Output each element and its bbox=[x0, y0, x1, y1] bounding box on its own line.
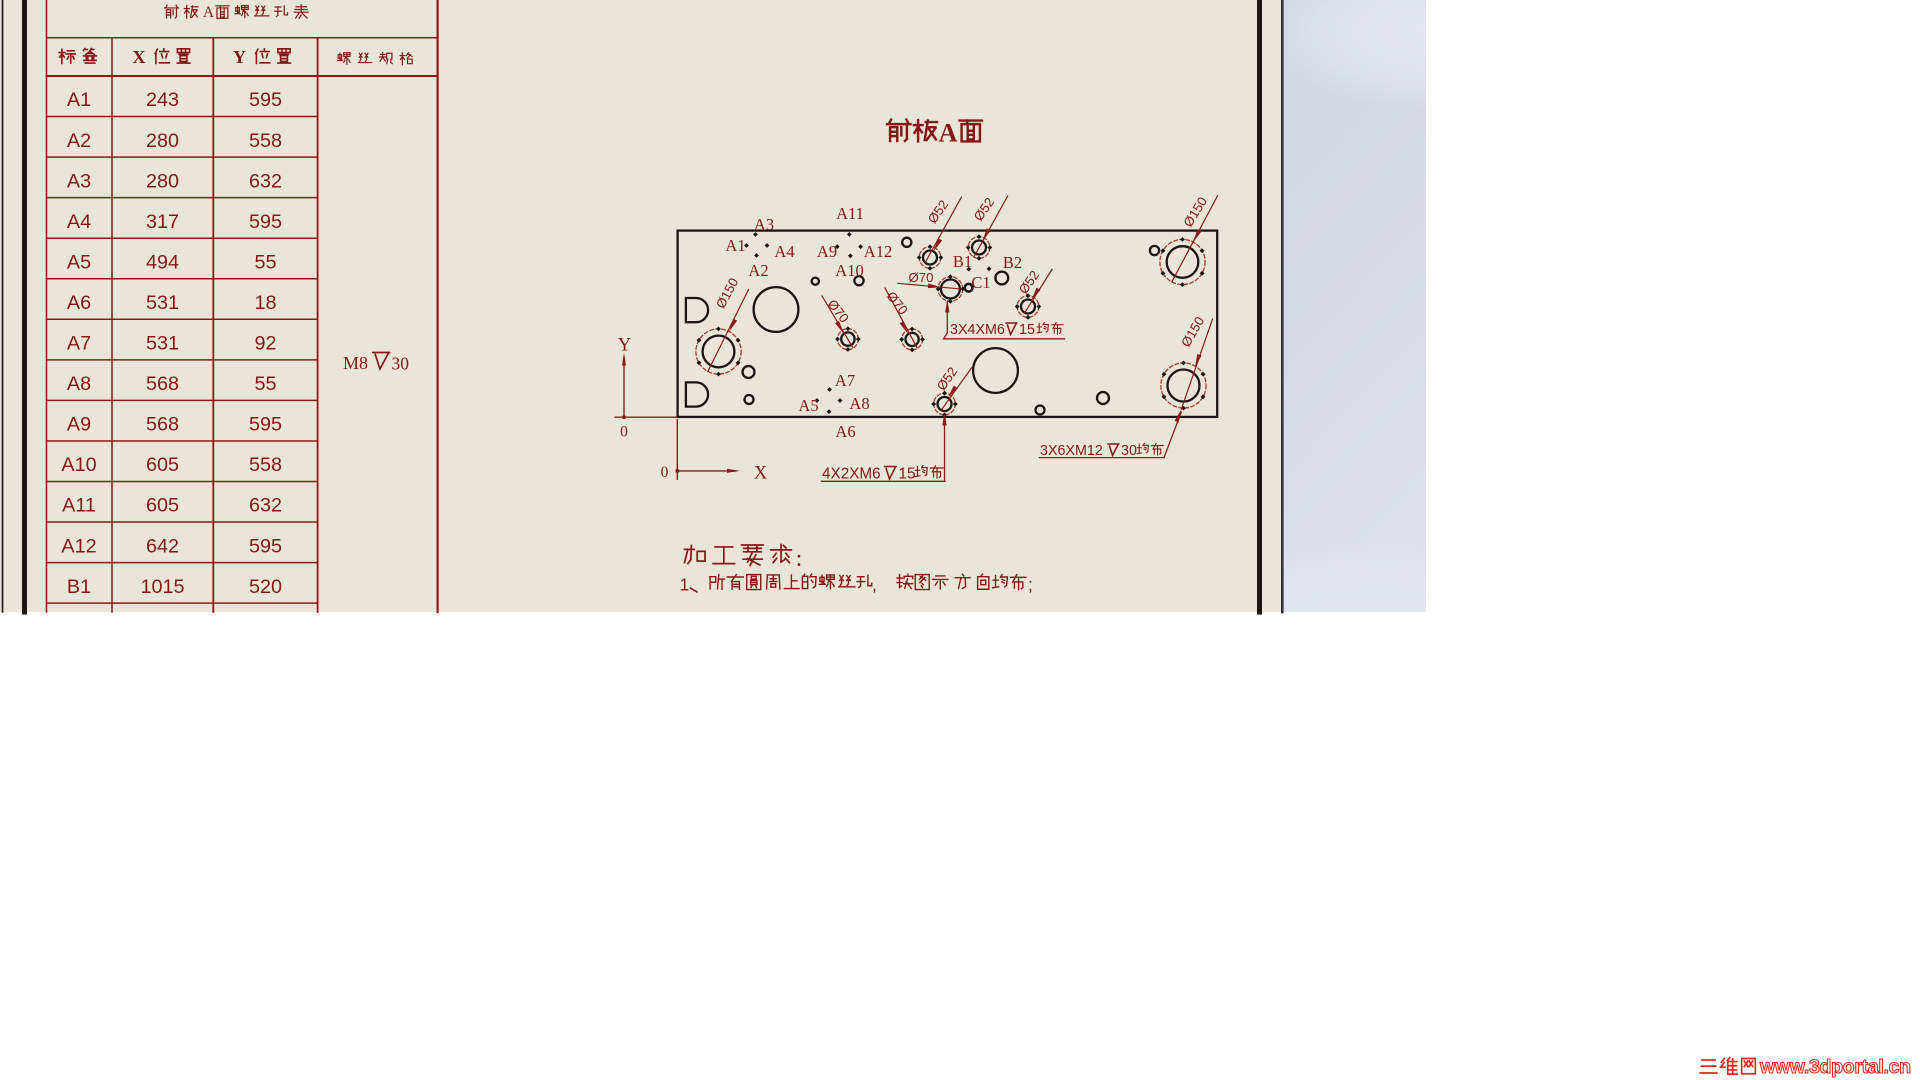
svg-text:0: 0 bbox=[620, 424, 628, 441]
svg-text:605: 605 bbox=[146, 495, 179, 517]
svg-text:B2: B2 bbox=[1003, 253, 1022, 272]
svg-text:;: ; bbox=[1028, 575, 1033, 595]
svg-text:A5: A5 bbox=[798, 396, 818, 415]
svg-text:www.3dportal.cn: www.3dportal.cn bbox=[1759, 1056, 1911, 1078]
svg-text:15: 15 bbox=[899, 466, 916, 483]
svg-text::: : bbox=[796, 546, 803, 572]
svg-text:A10: A10 bbox=[61, 454, 96, 476]
svg-text:317: 317 bbox=[146, 211, 179, 233]
svg-text:Y: Y bbox=[233, 47, 246, 67]
svg-text:595: 595 bbox=[249, 535, 282, 557]
svg-text:A4: A4 bbox=[67, 211, 91, 233]
svg-text:Y: Y bbox=[618, 336, 631, 356]
svg-text:A12: A12 bbox=[61, 535, 96, 557]
svg-text:558: 558 bbox=[249, 130, 282, 152]
svg-text:568: 568 bbox=[146, 373, 179, 395]
svg-text:595: 595 bbox=[249, 414, 282, 436]
svg-text:A9: A9 bbox=[67, 414, 91, 436]
svg-text:A5: A5 bbox=[67, 251, 91, 273]
svg-text:A6: A6 bbox=[67, 292, 91, 314]
svg-text:A3: A3 bbox=[754, 215, 774, 234]
svg-text:605: 605 bbox=[146, 454, 179, 476]
svg-text:A1: A1 bbox=[725, 236, 745, 255]
svg-text:4X2XM6: 4X2XM6 bbox=[822, 466, 881, 483]
svg-text:A3: A3 bbox=[67, 170, 91, 192]
svg-text:595: 595 bbox=[249, 89, 282, 111]
svg-text:642: 642 bbox=[146, 535, 179, 557]
svg-text:494: 494 bbox=[146, 251, 179, 273]
svg-text:30: 30 bbox=[1121, 443, 1137, 459]
svg-text:A8: A8 bbox=[67, 373, 91, 395]
svg-text:,: , bbox=[872, 575, 877, 595]
svg-text:568: 568 bbox=[146, 414, 179, 436]
svg-text:520: 520 bbox=[249, 576, 282, 598]
svg-text:531: 531 bbox=[146, 333, 179, 355]
svg-text:X: X bbox=[133, 47, 146, 67]
svg-text:531: 531 bbox=[146, 292, 179, 314]
svg-text:595: 595 bbox=[249, 211, 282, 233]
svg-text:A7: A7 bbox=[67, 333, 91, 355]
svg-text:A1: A1 bbox=[67, 89, 91, 111]
svg-text:X: X bbox=[754, 464, 768, 484]
svg-text:280: 280 bbox=[146, 130, 179, 152]
svg-text:A11: A11 bbox=[836, 204, 864, 223]
svg-text:3X6XM12: 3X6XM12 bbox=[1040, 443, 1103, 459]
svg-text:3X4XM6: 3X4XM6 bbox=[950, 322, 1005, 338]
svg-text:280: 280 bbox=[146, 170, 179, 192]
svg-text:A10: A10 bbox=[835, 261, 863, 280]
svg-text:A7: A7 bbox=[835, 371, 855, 390]
svg-text:C1: C1 bbox=[971, 273, 990, 292]
svg-text:1: 1 bbox=[680, 575, 690, 595]
svg-text:A6: A6 bbox=[835, 422, 855, 441]
svg-text:A11: A11 bbox=[62, 495, 96, 517]
svg-text:55: 55 bbox=[254, 251, 276, 273]
svg-text:Ø70: Ø70 bbox=[909, 270, 934, 285]
svg-text:632: 632 bbox=[249, 170, 282, 192]
svg-text:A2: A2 bbox=[748, 261, 768, 280]
svg-text:243: 243 bbox=[146, 89, 179, 111]
svg-text:M8: M8 bbox=[343, 353, 368, 373]
svg-text:A12: A12 bbox=[864, 242, 892, 261]
svg-text:A8: A8 bbox=[849, 394, 869, 413]
svg-text:632: 632 bbox=[249, 495, 282, 517]
svg-text:18: 18 bbox=[254, 292, 276, 314]
svg-text:0: 0 bbox=[661, 464, 669, 481]
svg-text:A9: A9 bbox=[817, 242, 837, 261]
svg-text:30: 30 bbox=[392, 354, 410, 374]
svg-text:1015: 1015 bbox=[140, 576, 184, 598]
svg-text:92: 92 bbox=[254, 333, 276, 355]
svg-text:B1: B1 bbox=[67, 576, 91, 598]
svg-text:A2: A2 bbox=[67, 130, 91, 152]
svg-text:A: A bbox=[939, 119, 958, 148]
svg-text:55: 55 bbox=[254, 373, 276, 395]
svg-text:A: A bbox=[203, 4, 215, 21]
svg-text:B1: B1 bbox=[953, 252, 972, 271]
svg-text:A4: A4 bbox=[774, 242, 794, 261]
svg-text:15: 15 bbox=[1019, 322, 1035, 338]
svg-text:558: 558 bbox=[249, 454, 282, 476]
